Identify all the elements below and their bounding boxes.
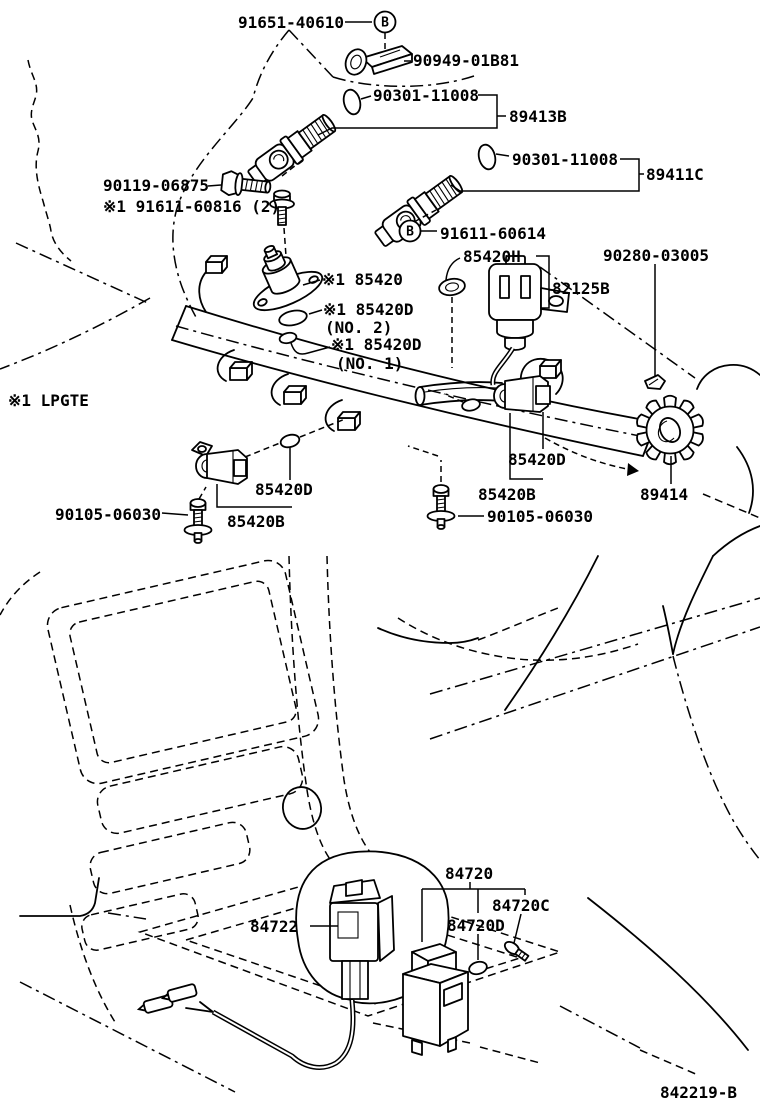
part-label-89413b: 89413B bbox=[509, 107, 567, 126]
part-label-84720: 84720 bbox=[445, 864, 493, 883]
part-label-85420: ※1 85420 bbox=[322, 270, 403, 289]
grommet-84720d-drawing bbox=[468, 960, 488, 976]
part-label-84720c: 84720C bbox=[492, 896, 550, 915]
part-label-85420d-left: 85420D bbox=[255, 480, 313, 499]
part-label-84722: 84722 bbox=[250, 917, 298, 936]
bolt-marker-b-upper: B bbox=[375, 12, 396, 33]
part-label-90301-11008-upper: 90301-11008 bbox=[373, 86, 479, 105]
part-label-91651-40610: 91651-40610 bbox=[238, 13, 344, 32]
bolt-90105-left-drawing bbox=[185, 499, 212, 543]
switch-85420b-left-drawing bbox=[192, 442, 247, 484]
part-label-85420d-no2: ※1 85420D bbox=[323, 300, 413, 319]
switch-85420b-center-drawing bbox=[494, 376, 550, 412]
part-label-91611-60614: 91611-60614 bbox=[440, 224, 546, 243]
part-label-84720d: 84720D bbox=[447, 916, 505, 935]
part-label-85420d-no1-sub: (NO. 1) bbox=[336, 354, 403, 373]
diagram-footnote: ※1 LPGTE bbox=[8, 391, 89, 410]
part-label-90949-01b81: 90949-01B81 bbox=[413, 51, 519, 70]
part-label-90105-06030-left: 90105-06030 bbox=[55, 505, 161, 524]
part-label-90119-06875: 90119-06875 bbox=[103, 176, 209, 195]
switch-89413b-drawing bbox=[244, 109, 340, 190]
gasket-85420d-no2-drawing bbox=[278, 308, 308, 328]
gasket-85420d-left-drawing bbox=[279, 433, 300, 450]
bolt-marker-b-upper-label: B bbox=[381, 16, 389, 31]
parts-catalog-page: B B 91651-40610 90949-01B81 90301-11008 … bbox=[0, 0, 760, 1112]
switch-85420-drawing bbox=[234, 232, 327, 318]
part-label-90280-03005: 90280-03005 bbox=[603, 246, 709, 265]
relay-84720-drawing bbox=[403, 944, 468, 1055]
part-label-85420b-center: 85420B bbox=[478, 485, 536, 504]
part-label-82125b: 82125B bbox=[552, 279, 610, 298]
gasket-90301-upper-drawing bbox=[341, 88, 363, 116]
parts-diagram: B B 91651-40610 90949-01B81 90301-11008 … bbox=[0, 0, 760, 1112]
part-label-91611-60816: ※1 91611-60816 (2) bbox=[103, 197, 280, 216]
switch-84722-drawing bbox=[137, 880, 394, 1067]
part-label-90105-06030-center: 90105-06030 bbox=[487, 507, 593, 526]
part-label-89411c: 89411C bbox=[646, 165, 704, 184]
part-label-90301-11008-lower: 90301-11008 bbox=[512, 150, 618, 169]
bolt-marker-b-lower-label: B bbox=[406, 225, 414, 240]
part-label-85420d-no1: ※1 85420D bbox=[331, 335, 421, 354]
bolt-90105-center-drawing bbox=[428, 485, 455, 529]
rotor-89414-drawing bbox=[636, 396, 705, 465]
gasket-85420d-no1-drawing bbox=[279, 331, 298, 344]
part-label-85420h: 85420H bbox=[463, 247, 521, 266]
bolt-marker-b-lower: B bbox=[400, 221, 421, 242]
gasket-90301-lower-drawing bbox=[476, 143, 498, 171]
part-label-89414: 89414 bbox=[640, 485, 688, 504]
instrument-panel-outline bbox=[0, 526, 760, 1092]
clip-90280-drawing bbox=[645, 375, 665, 389]
drawing-code: 842219-B bbox=[660, 1083, 737, 1102]
clamp-90949-drawing bbox=[342, 46, 412, 78]
part-label-85420d-center: 85420D bbox=[508, 450, 566, 469]
part-label-85420b-left: 85420B bbox=[227, 512, 285, 531]
washer-drawing bbox=[438, 277, 466, 297]
